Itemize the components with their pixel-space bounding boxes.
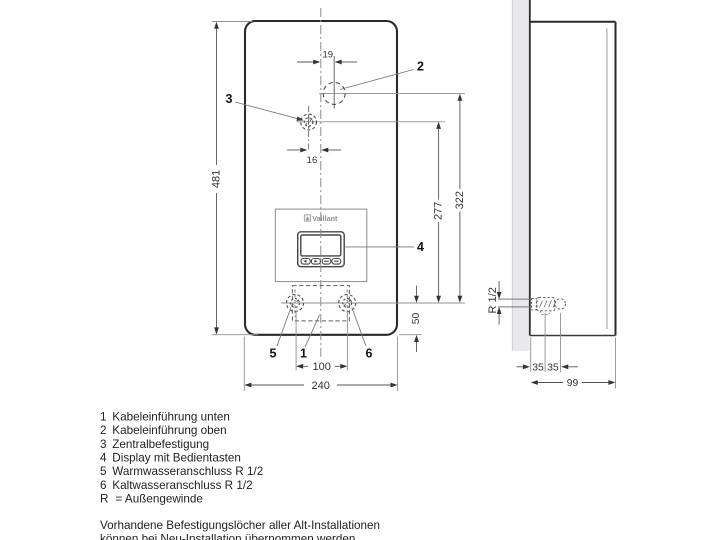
svg-text:35: 35 — [532, 362, 544, 373]
svg-text:Kaltwasseranschluss R 1/2: Kaltwasseranschluss R 1/2 — [112, 479, 252, 492]
svg-text:Vaillant: Vaillant — [312, 214, 338, 223]
svg-text:16: 16 — [307, 155, 318, 166]
svg-text:Warmwasseranschluss R 1/2: Warmwasseranschluss R 1/2 — [112, 465, 263, 478]
svg-text:6: 6 — [366, 347, 373, 361]
svg-text:= Außengewinde: = Außengewinde — [116, 493, 203, 506]
svg-text:R: R — [100, 493, 108, 506]
svg-text:35: 35 — [547, 362, 559, 373]
svg-text:481: 481 — [210, 170, 222, 188]
svg-text:2: 2 — [100, 424, 107, 437]
svg-text:Zentralbefestigung: Zentralbefestigung — [112, 438, 209, 451]
svg-text:19: 19 — [322, 50, 333, 61]
svg-text:Kabeleinführung oben: Kabeleinführung oben — [112, 424, 226, 437]
svg-text:können bei Neu-Installation üb: können bei Neu-Installation übernommen w… — [100, 533, 359, 540]
svg-text:Display mit Bedientasten: Display mit Bedientasten — [112, 452, 241, 465]
svg-text:5: 5 — [270, 347, 277, 361]
svg-text:240: 240 — [312, 380, 330, 392]
svg-text:4: 4 — [417, 240, 424, 254]
svg-text:322: 322 — [454, 191, 466, 209]
svg-text:277: 277 — [433, 202, 445, 220]
svg-text:R 1/2: R 1/2 — [487, 287, 499, 313]
svg-text:6: 6 — [100, 479, 107, 492]
svg-text:5: 5 — [100, 465, 107, 478]
svg-text:2: 2 — [417, 60, 424, 74]
svg-text:50: 50 — [411, 313, 422, 325]
svg-text:4: 4 — [100, 452, 107, 465]
svg-text:Kabeleinführung unten: Kabeleinführung unten — [112, 411, 230, 424]
svg-text:3: 3 — [226, 92, 233, 106]
svg-text:100: 100 — [313, 361, 331, 373]
svg-text:99: 99 — [567, 378, 579, 389]
svg-text:Vorhandene Befestigungslöcher: Vorhandene Befestigungslöcher aller Alt-… — [100, 519, 380, 532]
svg-text:1: 1 — [300, 347, 307, 361]
svg-text:3: 3 — [100, 438, 107, 451]
svg-text:1: 1 — [100, 411, 107, 424]
